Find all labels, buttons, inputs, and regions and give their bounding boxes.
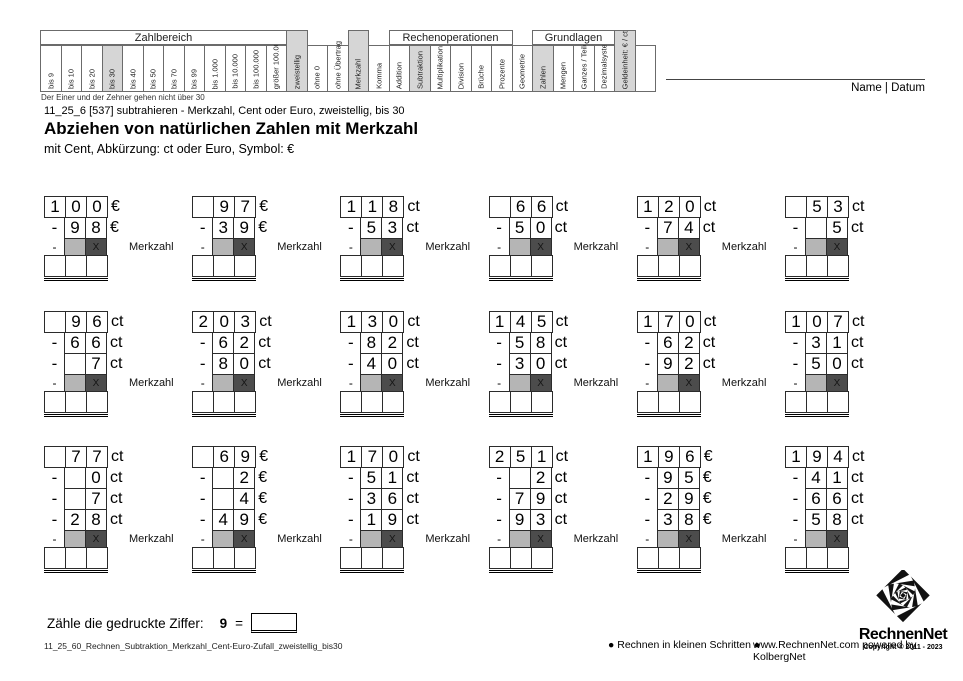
minus-sign: - — [637, 217, 658, 239]
merkzahl-label: Merkzahl — [277, 241, 322, 253]
problem-15: 170ct-51ct-36ct-19ct-XMerkzahl — [340, 446, 470, 573]
topic-col-label: bis 50 — [150, 69, 158, 89]
result-input-cell[interactable] — [658, 391, 680, 413]
merkzahl-input-cell[interactable] — [64, 238, 86, 256]
topic-col-label: bis 30 — [109, 69, 117, 89]
digit-cell: 1 — [340, 196, 362, 218]
topic-table: bis 9bis 10bis 20bis 30bis 40bis 50bis 7… — [40, 30, 658, 92]
result-input-cell[interactable] — [65, 391, 87, 413]
problem-5: 120ct-74ct-XMerkzahl — [637, 196, 767, 281]
digit-cell: 7 — [658, 311, 680, 333]
topic-col-label: Addition — [396, 62, 404, 89]
minus-sign: - — [637, 488, 658, 510]
merkzahl-crossed-cell: X — [381, 530, 403, 548]
minus-sign: - — [785, 217, 806, 239]
result-input-cell[interactable] — [510, 255, 532, 277]
merkzahl-label: Merkzahl — [129, 241, 174, 253]
result-input-cell[interactable] — [213, 391, 235, 413]
minus-sign: - — [192, 217, 213, 239]
minus-sign: - — [637, 374, 658, 392]
digit-cell: 2 — [233, 467, 255, 489]
subtrahend-row: -5ct — [785, 217, 864, 239]
unit-label: € — [258, 470, 267, 486]
merkzahl-label: Merkzahl — [129, 533, 174, 545]
subtrahend-row: -66ct — [44, 332, 174, 354]
result-input-cell[interactable] — [531, 255, 553, 277]
merkzahl-input-cell[interactable] — [657, 530, 679, 548]
merkzahl-row: -X — [785, 530, 864, 548]
problem-16: 251ct-2ct-79ct-93ct-XMerkzahl — [489, 446, 619, 573]
merkzahl-input-cell[interactable] — [657, 238, 679, 256]
result-input-cell[interactable] — [637, 255, 659, 277]
result-input-cell[interactable] — [382, 391, 404, 413]
minuend-row: 66ct — [489, 196, 619, 218]
merkzahl-input-cell[interactable] — [657, 374, 679, 392]
unit-label: ct — [407, 314, 419, 330]
topic-col-label: Geldeinheit: € / ct — [621, 31, 629, 89]
topic-col-label: größer 100.000 — [273, 38, 281, 89]
minuend-row: 203ct — [192, 311, 322, 333]
digit-cell: 9 — [658, 446, 680, 468]
digit-cell: 4 — [233, 488, 255, 510]
merkzahl-row: -XMerkzahl — [44, 374, 174, 392]
digit-cell: 3 — [381, 217, 403, 239]
merkzahl-row: -XMerkzahl — [192, 530, 322, 548]
digit-cell: 8 — [360, 332, 382, 354]
subtrahend-row: -40ct — [340, 353, 470, 375]
result-double-line — [637, 414, 701, 417]
minuend-row: 194ct — [785, 446, 864, 468]
digit-cell: 1 — [489, 311, 511, 333]
minus-sign: - — [489, 217, 510, 239]
unit-label: ct — [703, 335, 715, 351]
minus-sign: - — [192, 530, 213, 548]
result-input-cell[interactable] — [86, 255, 108, 277]
result-input-cell[interactable] — [361, 547, 383, 569]
topic-col-label: bis 1.000 — [211, 59, 219, 89]
minus-sign: - — [489, 353, 510, 375]
merkzahl-input-cell[interactable] — [509, 374, 531, 392]
result-input-cell[interactable] — [234, 255, 256, 277]
digit-cell: 2 — [489, 446, 511, 468]
result-input-cell[interactable] — [658, 255, 680, 277]
result-input-cell[interactable] — [679, 391, 701, 413]
topic-col-17: Addition — [389, 45, 411, 92]
digit-cell — [64, 467, 86, 489]
subtrahend-row: -98€ — [44, 217, 174, 239]
unit-label: € — [258, 220, 267, 236]
unit-label: ct — [556, 199, 568, 215]
result-input-cell[interactable] — [510, 391, 532, 413]
subtrahend-row: -19ct — [340, 509, 470, 531]
digit-cell: 3 — [361, 311, 383, 333]
merkzahl-row: -XMerkzahl — [637, 530, 767, 548]
result-input-cell[interactable] — [489, 255, 511, 277]
digit-cell: 0 — [86, 196, 108, 218]
result-input-cell[interactable] — [827, 255, 849, 277]
merkzahl-input-cell[interactable] — [360, 238, 382, 256]
digit-cell: 2 — [192, 311, 214, 333]
unit-label: ct — [406, 491, 418, 507]
merkzahl-crossed-cell: X — [233, 238, 255, 256]
minus-sign: - — [489, 238, 510, 256]
topic-col-6: bis 70 — [163, 45, 185, 92]
digit-cell: 4 — [805, 467, 827, 489]
result-row — [785, 547, 864, 569]
topic-col-23: Geometrie — [512, 45, 534, 92]
merkzahl-input-cell[interactable] — [360, 374, 382, 392]
minuend-row: 77ct — [44, 446, 174, 468]
topic-group-Zahlbereich: Zahlbereich — [40, 30, 287, 45]
topic-col-label: ohne Übertrag — [334, 41, 342, 89]
digit-cell: 0 — [679, 311, 701, 333]
merkzahl-crossed-cell: X — [85, 374, 107, 392]
topic-col-2: bis 20 — [81, 45, 103, 92]
minus-sign: - — [340, 332, 361, 354]
unit-label: ct — [555, 220, 567, 236]
digit-cell: 1 — [340, 311, 362, 333]
minus-sign: - — [44, 353, 65, 375]
result-input-cell[interactable] — [785, 255, 807, 277]
merkzahl-crossed-cell: X — [826, 238, 848, 256]
minus-sign: - — [44, 332, 65, 354]
digit-cell: 5 — [805, 353, 827, 375]
result-input-cell[interactable] — [234, 547, 256, 569]
result-input-cell[interactable] — [86, 391, 108, 413]
unit-label: € — [259, 199, 268, 215]
topic-col-label: Dezimalsystem — [601, 38, 609, 89]
topic-col-26: Ganzes / Teile — [573, 45, 595, 92]
name-datum-field[interactable]: Name | Datum — [666, 79, 925, 94]
result-input-cell[interactable] — [637, 547, 659, 569]
result-input-cell[interactable] — [679, 547, 701, 569]
digit-cell: 7 — [85, 488, 107, 510]
result-input-cell[interactable] — [192, 391, 214, 413]
digit-cell: 4 — [510, 311, 532, 333]
digit-cell: 9 — [65, 311, 87, 333]
digit-cell: 9 — [381, 509, 403, 531]
result-input-cell[interactable] — [510, 547, 532, 569]
result-input-cell[interactable] — [340, 255, 362, 277]
minus-sign: - — [785, 530, 806, 548]
result-input-cell[interactable] — [806, 547, 828, 569]
unit-label: ct — [111, 449, 123, 465]
minus-sign: - — [44, 467, 65, 489]
merkzahl-crossed-cell: X — [530, 374, 552, 392]
merkzahl-input-cell[interactable] — [805, 530, 827, 548]
result-input-cell[interactable] — [806, 255, 828, 277]
result-double-line — [489, 570, 553, 573]
digit-cell: 6 — [826, 488, 848, 510]
unit-label: ct — [555, 491, 567, 507]
digit-cell: 0 — [381, 353, 403, 375]
topic-col-15: Merkzahl — [348, 30, 370, 92]
topic-col-label: Subtraktion — [416, 51, 424, 89]
minus-sign: - — [44, 509, 65, 531]
problem-6: 53ct-5ct-X — [785, 196, 864, 281]
merkzahl-input-cell[interactable] — [360, 530, 382, 548]
topic-col-label: Zahlen — [539, 66, 547, 89]
result-input-cell[interactable] — [192, 547, 214, 569]
topic-col-label: bis 10 — [68, 69, 76, 89]
digit-cell: 4 — [212, 509, 234, 531]
merkzahl-row: -XMerkzahl — [340, 530, 470, 548]
unit-label: ct — [110, 491, 122, 507]
merkzahl-input-cell[interactable] — [212, 238, 234, 256]
merkzahl-crossed-cell: X — [826, 374, 848, 392]
merkzahl-crossed-cell: X — [530, 238, 552, 256]
merkzahl-label: Merkzahl — [722, 377, 767, 389]
merkzahl-input-cell[interactable] — [64, 374, 86, 392]
digit-cell: 9 — [64, 217, 86, 239]
minus-sign: - — [637, 509, 658, 531]
digit-cell: 6 — [657, 332, 679, 354]
digit-cell — [44, 446, 66, 468]
digit-cell: 0 — [85, 467, 107, 489]
merkzahl-crossed-cell: X — [678, 530, 700, 548]
result-input-cell[interactable] — [340, 547, 362, 569]
result-input-cell[interactable] — [785, 391, 807, 413]
digit-cell: 3 — [212, 217, 234, 239]
unit-label: ct — [110, 512, 122, 528]
result-input-cell[interactable] — [361, 391, 383, 413]
digit-cell: 0 — [806, 311, 828, 333]
result-double-line — [785, 414, 849, 417]
digit-cell: 6 — [679, 446, 701, 468]
minus-sign: - — [785, 509, 806, 531]
unit-label: ct — [406, 512, 418, 528]
topic-col-11: größer 100.000 — [266, 45, 288, 92]
merkzahl-label: Merkzahl — [425, 241, 470, 253]
result-input-cell[interactable] — [234, 391, 256, 413]
topic-col-22: Prozente — [491, 45, 513, 92]
result-input-cell[interactable] — [361, 255, 383, 277]
result-input-cell[interactable] — [65, 255, 87, 277]
minuend-row: 130ct — [340, 311, 470, 333]
unit-label: ct — [406, 335, 418, 351]
result-input-cell[interactable] — [785, 547, 807, 569]
problem-12: 107ct-31ct-50ct-X — [785, 311, 864, 417]
result-input-cell[interactable] — [382, 255, 404, 277]
rechnennet-spiral-logo-icon — [874, 570, 932, 624]
merkzahl-input-cell[interactable] — [509, 530, 531, 548]
unit-label: ct — [110, 335, 122, 351]
result-input-cell[interactable] — [637, 391, 659, 413]
merkzahl-input-cell[interactable] — [64, 530, 86, 548]
subtrahend-row: -95€ — [637, 467, 767, 489]
digit-cell: 6 — [86, 311, 108, 333]
minuend-row: 170ct — [340, 446, 470, 468]
digit-cell: 3 — [827, 196, 849, 218]
topic-col-16: Komma — [368, 45, 390, 92]
merkzahl-label: Merkzahl — [574, 241, 619, 253]
digit-cell: 5 — [509, 332, 531, 354]
problem-2: 97€-39€-XMerkzahl — [192, 196, 322, 281]
result-input-cell[interactable] — [44, 547, 66, 569]
result-input-cell[interactable] — [213, 547, 235, 569]
subtrahend-row: -39€ — [192, 217, 322, 239]
topic-col-3: bis 30 — [102, 45, 124, 92]
unit-label: ct — [407, 449, 419, 465]
merkzahl-row: -X — [785, 374, 864, 392]
unit-label: ct — [259, 314, 271, 330]
result-input-cell[interactable] — [86, 547, 108, 569]
digit-cell: 1 — [531, 446, 553, 468]
minus-sign: - — [785, 374, 806, 392]
topic-col-19: Multiplikation — [430, 45, 452, 92]
digit-cell: 0 — [382, 446, 404, 468]
unit-label: ct — [258, 335, 270, 351]
topic-group-Grundlagen: Grundlagen — [532, 30, 615, 45]
topic-col-label: Brüche — [478, 65, 486, 89]
subtrahend-row: -30ct — [489, 353, 619, 375]
topic-col-24: Zahlen — [532, 45, 554, 92]
result-input-cell[interactable] — [192, 255, 214, 277]
merkzahl-crossed-cell: X — [530, 530, 552, 548]
problem-14: 69€-2€-4€-49€-XMerkzahl — [192, 446, 322, 573]
problem-4: 66ct-50ct-XMerkzahl — [489, 196, 619, 281]
unit-label: ct — [406, 220, 418, 236]
merkzahl-crossed-cell: X — [381, 374, 403, 392]
result-double-line — [192, 414, 256, 417]
result-input-cell[interactable] — [44, 391, 66, 413]
digit-cell: 9 — [233, 217, 255, 239]
result-input-cell[interactable] — [340, 391, 362, 413]
result-input-cell[interactable] — [531, 547, 553, 569]
minus-sign: - — [785, 332, 806, 354]
digit-cell: 1 — [381, 467, 403, 489]
result-double-line — [44, 570, 108, 573]
unit-label: ct — [110, 470, 122, 486]
digit-cell — [64, 353, 86, 375]
topic-col-label: Mengen — [560, 62, 568, 89]
digit-cell: 1 — [826, 467, 848, 489]
digit-cell: 5 — [805, 509, 827, 531]
digit-cell: 8 — [85, 217, 107, 239]
subtrahend-row: -36ct — [340, 488, 470, 510]
merkzahl-input-cell[interactable] — [805, 238, 827, 256]
digit-cell: 9 — [233, 509, 255, 531]
minus-sign: - — [340, 374, 361, 392]
result-input-cell[interactable] — [65, 547, 87, 569]
result-row — [637, 255, 767, 277]
digit-cell: 1 — [44, 196, 66, 218]
digit-cell: 2 — [678, 353, 700, 375]
minus-sign: - — [489, 374, 510, 392]
merkzahl-input-cell[interactable] — [212, 374, 234, 392]
digit-cell: 1 — [361, 196, 383, 218]
minus-sign: - — [192, 509, 213, 531]
result-row — [340, 547, 470, 569]
digit-cell: 6 — [381, 488, 403, 510]
digit-cell: 7 — [361, 446, 383, 468]
result-row — [192, 547, 322, 569]
topic-col-14: ohne Übertrag — [327, 45, 349, 92]
merkzahl-row: -XMerkzahl — [192, 238, 322, 256]
result-input-cell[interactable] — [489, 547, 511, 569]
minus-sign: - — [192, 467, 213, 489]
digit-cell — [509, 467, 531, 489]
problem-18: 194ct-41ct-66ct-58ct-X — [785, 446, 864, 573]
merkzahl-crossed-cell: X — [678, 374, 700, 392]
topic-col-label: Division — [457, 63, 465, 89]
digit-cell: 0 — [382, 311, 404, 333]
topic-col-7: bis 99 — [184, 45, 206, 92]
minus-sign: - — [340, 238, 361, 256]
merkzahl-label: Merkzahl — [425, 533, 470, 545]
result-input-cell[interactable] — [44, 255, 66, 277]
logo-name: RechnenNet — [853, 627, 953, 643]
minuend-row: 120ct — [637, 196, 767, 218]
digit-cell: 3 — [657, 509, 679, 531]
minus-sign: - — [489, 509, 510, 531]
subtrahend-row: -74ct — [637, 217, 767, 239]
subtrahend-row: -49€ — [192, 509, 322, 531]
result-row — [44, 255, 174, 277]
topic-col-0: bis 9 — [40, 45, 62, 92]
subtrahend-row: -41ct — [785, 467, 864, 489]
footer-slogan: ● Rechnen in kleinen Schritten ● — [608, 639, 760, 651]
result-double-line — [192, 570, 256, 573]
merkzahl-crossed-cell: X — [678, 238, 700, 256]
merkzahl-crossed-cell: X — [826, 530, 848, 548]
minuend-row: 107ct — [785, 311, 864, 333]
merkzahl-input-cell[interactable] — [212, 530, 234, 548]
digit-cell: 1 — [340, 446, 362, 468]
digit-cell: 0 — [213, 311, 235, 333]
result-input-cell[interactable] — [658, 547, 680, 569]
counting-task-answer-box[interactable] — [251, 613, 297, 633]
topic-col-25: Mengen — [553, 45, 575, 92]
topic-col-4: bis 40 — [122, 45, 144, 92]
topic-col-18: Subtraktion — [409, 45, 431, 92]
unit-label: ct — [556, 314, 568, 330]
digit-cell: 6 — [212, 332, 234, 354]
result-input-cell[interactable] — [679, 255, 701, 277]
merkzahl-input-cell[interactable] — [509, 238, 531, 256]
digit-cell: 2 — [233, 332, 255, 354]
digit-cell: 6 — [510, 196, 532, 218]
result-input-cell[interactable] — [382, 547, 404, 569]
problem-13: 77ct-0ct-7ct-28ct-XMerkzahl — [44, 446, 174, 573]
unit-label: ct — [851, 491, 863, 507]
unit-label: ct — [703, 356, 715, 372]
topic-col-label: bis 20 — [88, 69, 96, 89]
result-input-cell[interactable] — [213, 255, 235, 277]
minus-sign: - — [192, 353, 213, 375]
result-input-cell[interactable] — [531, 391, 553, 413]
digit-cell: 2 — [381, 332, 403, 354]
result-row — [340, 391, 470, 413]
merkzahl-row: -XMerkzahl — [44, 530, 174, 548]
merkzahl-row: -XMerkzahl — [340, 238, 470, 256]
digit-cell: 6 — [805, 488, 827, 510]
merkzahl-input-cell[interactable] — [805, 374, 827, 392]
digit-cell: 2 — [657, 488, 679, 510]
digit-cell: 9 — [530, 488, 552, 510]
result-input-cell[interactable] — [827, 547, 849, 569]
minuend-row: 196€ — [637, 446, 767, 468]
result-input-cell[interactable] — [827, 391, 849, 413]
result-input-cell[interactable] — [806, 391, 828, 413]
digit-cell: 7 — [234, 196, 256, 218]
subtrahend-row: -62ct — [192, 332, 322, 354]
result-input-cell[interactable] — [489, 391, 511, 413]
minus-sign: - — [637, 353, 658, 375]
minus-sign: - — [785, 353, 806, 375]
minus-sign: - — [340, 467, 361, 489]
subtrahend-row: -82ct — [340, 332, 470, 354]
